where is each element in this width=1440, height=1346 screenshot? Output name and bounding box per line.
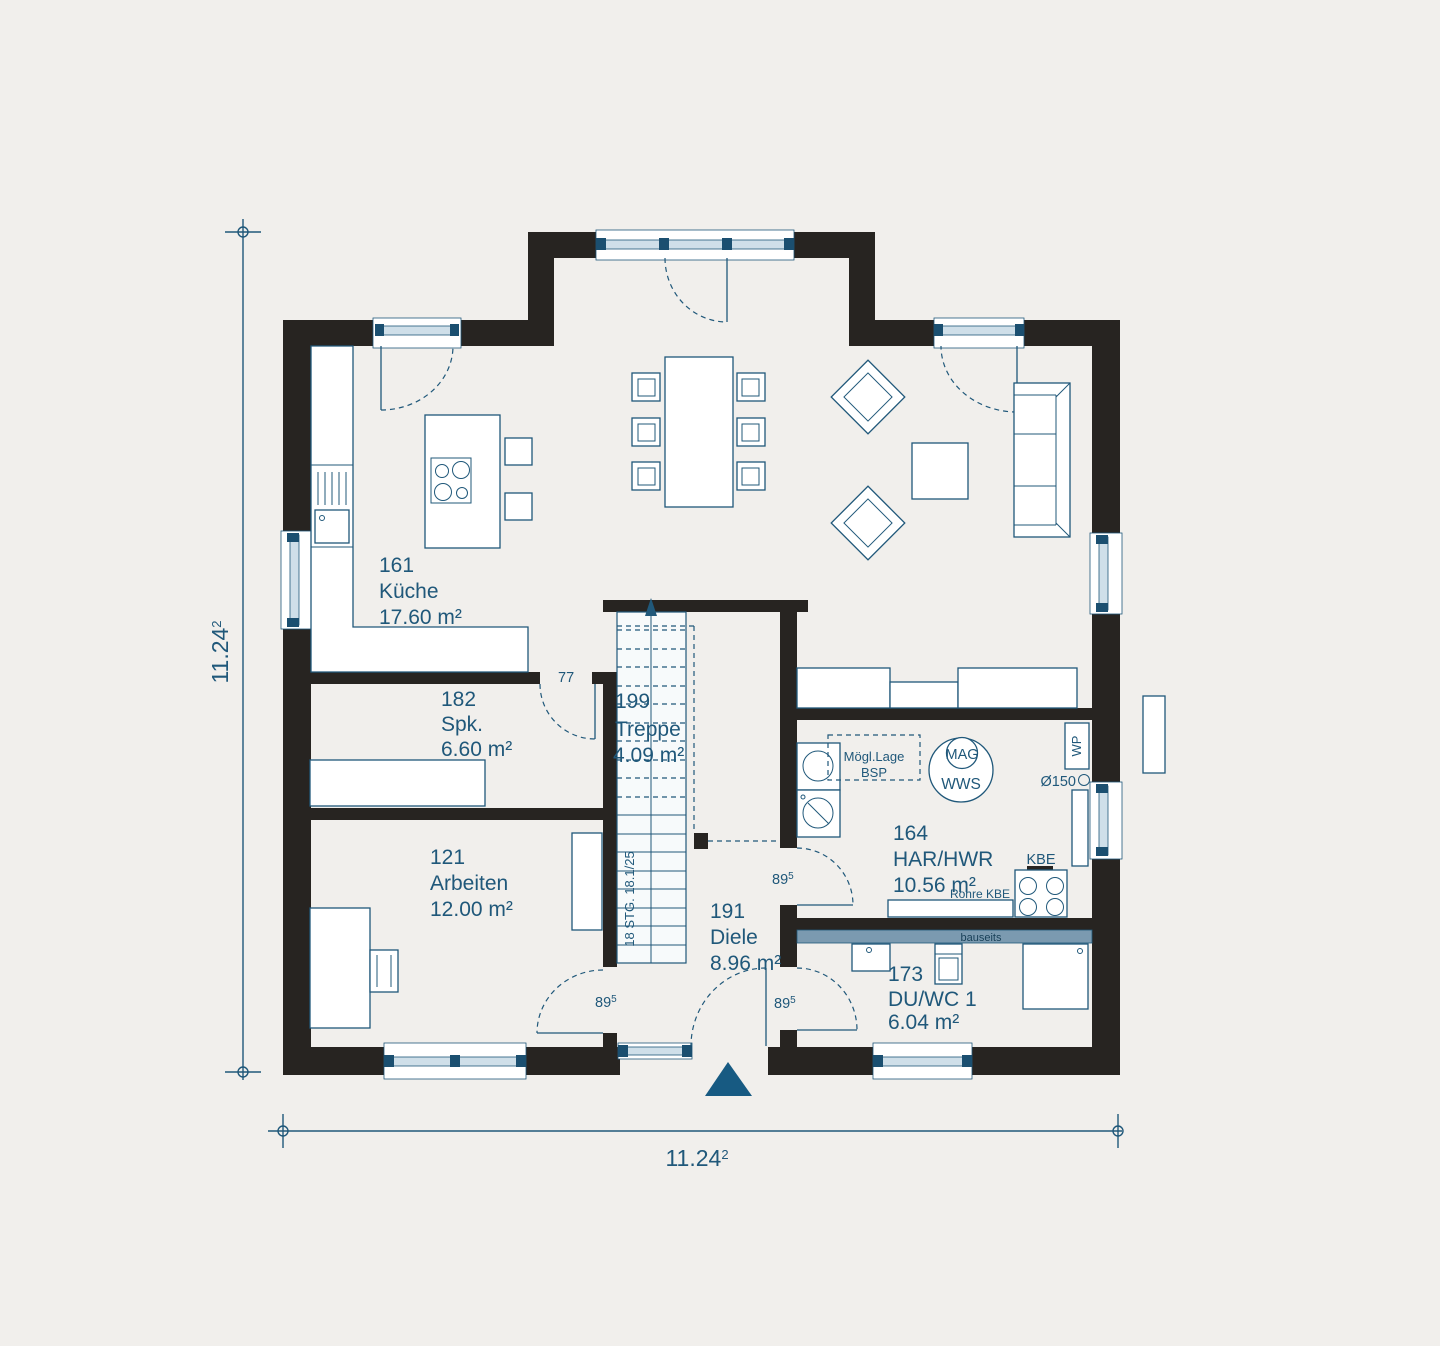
washing-machine <box>797 743 840 790</box>
dimension-bottom <box>268 1114 1123 1148</box>
dining-set <box>632 357 765 507</box>
living-furniture <box>797 360 1077 708</box>
room-number: 164 <box>893 822 928 845</box>
dining-table <box>665 357 733 507</box>
sideboard <box>797 668 1077 708</box>
room-name: DU/WC 1 <box>888 988 977 1011</box>
window-top-right <box>934 318 1024 348</box>
floor-plan-drawing: 161 Küche 17.60 m² 182 Spk. 6.60 m² 121 … <box>0 0 1440 1346</box>
armchair <box>831 486 905 560</box>
room-name: Arbeiten <box>430 872 508 895</box>
room-area: 6.60 m² <box>441 738 512 761</box>
window-right-living <box>1090 533 1122 614</box>
mag-label: MAG <box>945 747 978 763</box>
kbe-label: KBE <box>1026 852 1055 868</box>
entrance-arrow-icon <box>705 1062 752 1096</box>
room-label-spk: 182 Spk. 6.60 m² <box>441 688 512 761</box>
door-width-label: 895 <box>595 994 617 1011</box>
staircase <box>617 598 780 963</box>
toilet <box>935 944 962 984</box>
bsp-label-line2: BSP <box>861 765 887 780</box>
kitchen-island <box>425 415 532 548</box>
shower <box>1023 944 1088 1009</box>
bauseits-band <box>797 930 1092 943</box>
room-area: 12.00 m² <box>430 898 513 921</box>
window-left-kitchen <box>281 531 313 629</box>
bsp-label-line1: Mögl.Lage <box>844 749 905 764</box>
dryer <box>797 790 840 837</box>
room-name: Diele <box>710 926 758 949</box>
room-label-har: 164 HAR/HWR 10.56 m² <box>893 822 993 897</box>
room-number: 121 <box>430 846 465 869</box>
armchair <box>831 360 905 434</box>
room-area: 17.60 m² <box>379 606 462 629</box>
room-area: 8.96 m² <box>710 952 781 975</box>
wws-label: WWS <box>941 776 981 793</box>
washbasin <box>852 944 890 971</box>
sofa <box>1014 383 1070 537</box>
entrance-sidelight <box>618 1043 692 1059</box>
room-label-duwc: 173 DU/WC 1 6.04 m² <box>888 963 977 1034</box>
desk-chair <box>370 950 398 992</box>
window-bottom-duwc <box>873 1043 972 1079</box>
door-width-label: 895 <box>772 871 794 888</box>
room-name: HAR/HWR <box>893 848 993 871</box>
room-area: 6.04 m² <box>888 1011 959 1034</box>
pipe-diameter-label: Ø150 <box>1041 774 1076 790</box>
room-name: Küche <box>379 580 439 603</box>
room-number: 161 <box>379 554 414 577</box>
room-number: 173 <box>888 963 923 986</box>
wp-label: WP <box>1069 736 1084 757</box>
outdoor-unit <box>1143 696 1165 773</box>
room-label-arbeiten: 121 Arbeiten 12.00 m² <box>430 846 513 921</box>
desk <box>310 908 370 1028</box>
room-name: Treppe <box>615 718 681 741</box>
door-width-label-kitchen: 77 <box>558 670 574 686</box>
wardrobe <box>572 833 602 930</box>
room-number: 191 <box>710 900 745 923</box>
bar-stool <box>505 493 532 520</box>
kbe-pipes-duct <box>888 900 1013 917</box>
door-width-label: 895 <box>774 995 796 1012</box>
coffee-table <box>912 443 968 499</box>
terrace-door-top <box>596 230 794 260</box>
bar-stool <box>505 438 532 465</box>
stair-note-label: 18 STG. 18.1/25 <box>622 851 637 946</box>
dimension-height-label: 11.242 <box>207 620 233 683</box>
kitchen-sink <box>315 510 349 543</box>
room-area: 4.09 m² <box>613 744 684 767</box>
window-bottom-arbeiten <box>384 1043 526 1079</box>
kbe-unit <box>1015 866 1067 917</box>
rohre-kbe-label: Rohre KBE <box>950 887 1010 901</box>
room-number: 182 <box>441 688 476 711</box>
bauseits-label: bauseits <box>961 932 1002 944</box>
dimension-width-label: 11.242 <box>665 1145 728 1171</box>
window-top-left <box>373 318 461 348</box>
room-label-kueche: 161 Küche 17.60 m² <box>379 554 462 629</box>
spk-shelf <box>310 760 485 806</box>
floor-plan-canvas: 161 Küche 17.60 m² 182 Spk. 6.60 m² 121 … <box>0 0 1440 1346</box>
pipe-circle <box>1079 775 1090 786</box>
window-right-har <box>1072 782 1122 866</box>
room-name: Spk. <box>441 713 483 736</box>
room-number: 199 <box>615 690 650 713</box>
room-label-diele: 191 Diele 8.96 m² <box>710 900 781 975</box>
